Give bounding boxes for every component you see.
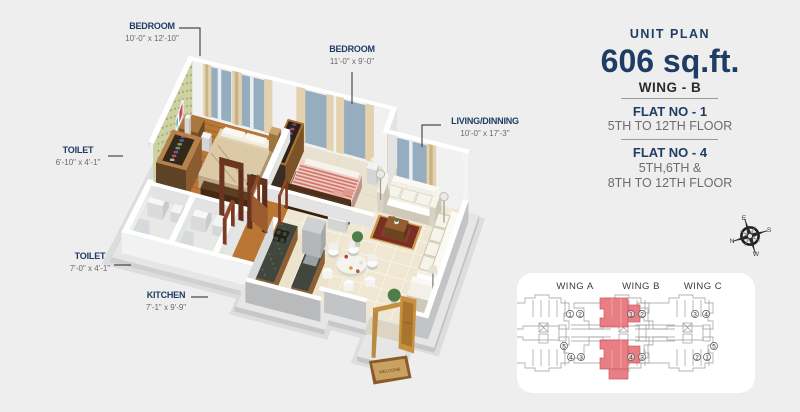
svg-text:1: 1 (705, 354, 709, 361)
svg-text:4: 4 (629, 354, 633, 361)
svg-text:4: 4 (569, 354, 573, 361)
svg-text:N: N (730, 238, 735, 245)
svg-text:2: 2 (695, 354, 699, 361)
svg-text:5: 5 (562, 343, 566, 350)
svg-text:W: W (753, 251, 760, 258)
svg-text:2: 2 (578, 311, 582, 318)
svg-text:5: 5 (712, 343, 716, 350)
svg-text:WING C: WING C (684, 281, 722, 292)
svg-text:4: 4 (704, 311, 708, 318)
svg-text:3: 3 (693, 311, 697, 318)
svg-text:3: 3 (579, 354, 583, 361)
svg-text:1: 1 (568, 311, 572, 318)
svg-text:1: 1 (629, 311, 633, 318)
svg-text:2: 2 (640, 311, 644, 318)
svg-text:E: E (742, 215, 747, 222)
svg-text:3: 3 (640, 354, 644, 361)
svg-text:WING B: WING B (622, 281, 660, 292)
svg-text:WING A: WING A (556, 281, 593, 292)
svg-text:S: S (767, 227, 772, 234)
